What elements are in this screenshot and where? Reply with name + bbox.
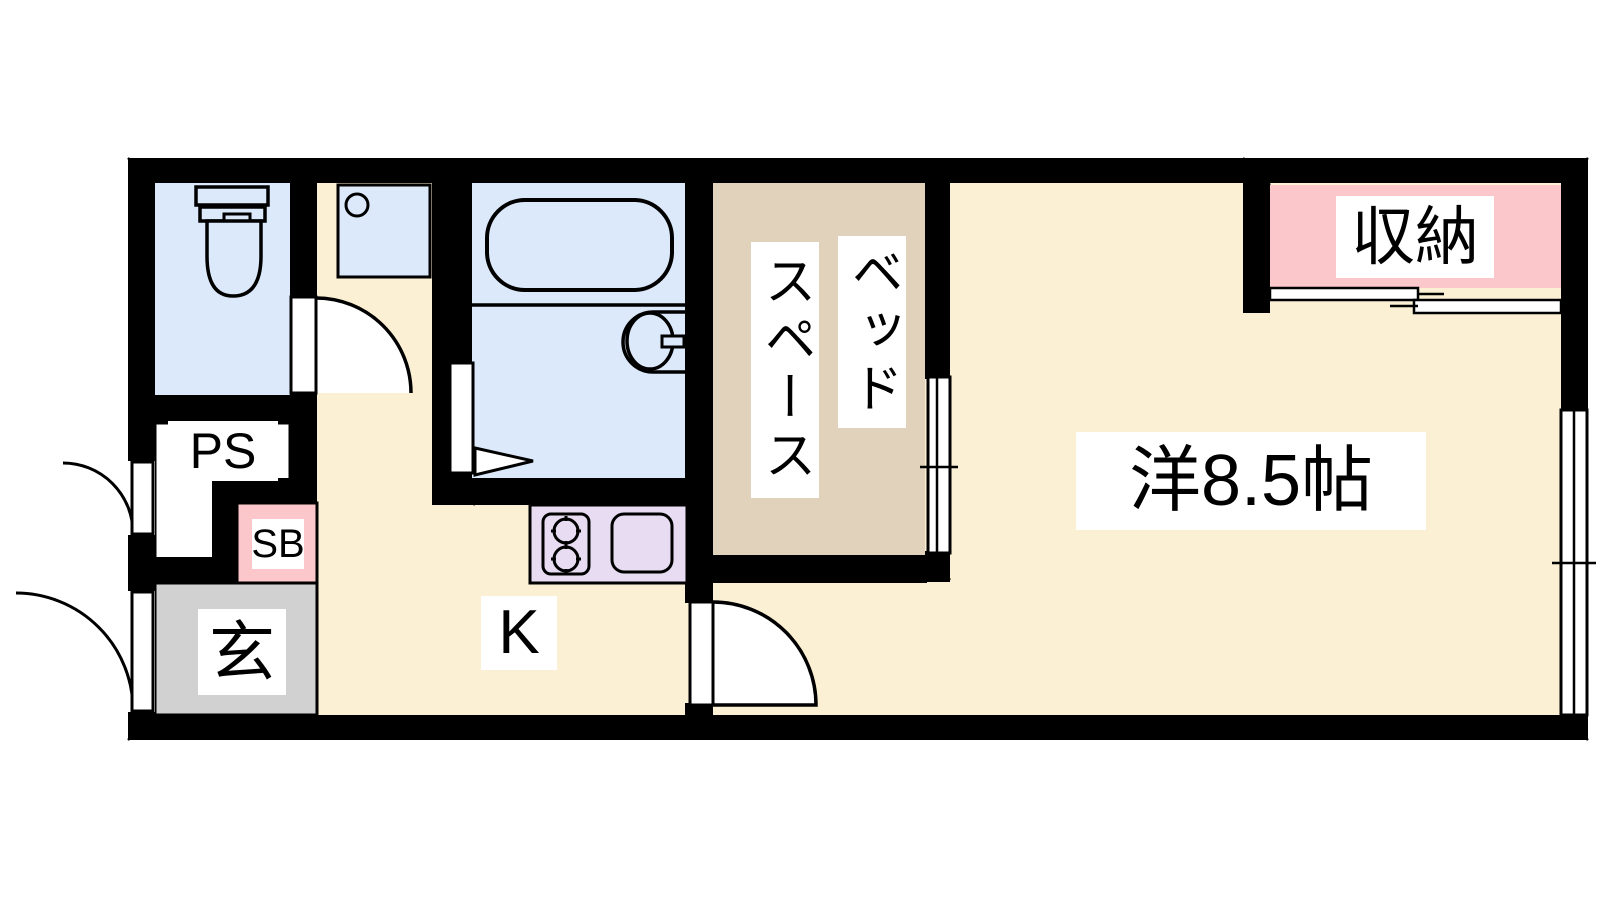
bath-door-leaf <box>450 363 473 473</box>
wall-toilet-right-upper <box>290 183 317 298</box>
sliding-panel-right <box>1414 300 1561 313</box>
room-label-bed-space-1: ベッド <box>838 236 906 428</box>
ps-door <box>63 461 155 535</box>
room-label-shoe-box: SB <box>252 519 304 569</box>
bathtub-icon <box>487 200 672 290</box>
wall-bedspace-bottom <box>713 555 927 583</box>
wall-toilet-right-lower <box>290 390 317 480</box>
room-label-entrance: 玄 <box>198 609 286 695</box>
toilet-bowl <box>207 221 261 296</box>
kitchen-counter <box>530 505 687 583</box>
wall-kitchen-bedspace <box>685 183 713 603</box>
wall-toilet-bottom <box>128 395 317 423</box>
toilet-tank <box>196 187 268 205</box>
floor-plan: PS SB 玄 K ベッド スペース 洋8.5帖 収納 <box>0 0 1600 900</box>
toilet-door-leaf <box>291 297 316 393</box>
bathtub <box>487 200 672 290</box>
room-label-western-room: 洋8.5帖 <box>1076 432 1426 530</box>
entrance-door-swing-area <box>16 593 133 710</box>
washing-pan-drain <box>346 194 368 216</box>
entrance-door <box>16 591 155 712</box>
ps-door-leaf <box>132 462 153 534</box>
wall-bedspace-right-upper <box>925 158 950 379</box>
washing-machine-pan-icon <box>338 185 430 277</box>
sliding-panel-left <box>1270 288 1418 300</box>
room-label-bed-space-2: スペース <box>751 242 819 498</box>
entrance-door-leaf <box>132 592 153 711</box>
room-label-kitchen: K <box>481 596 557 670</box>
bedspace-window-frame <box>928 377 950 553</box>
basin-tap <box>662 336 684 347</box>
room-label-storage: 収納 <box>1336 196 1494 278</box>
room-label-pipe-space: PS <box>168 421 278 481</box>
kitchen-sink-icon <box>612 514 672 572</box>
kitchen-door-leaf <box>690 602 713 705</box>
